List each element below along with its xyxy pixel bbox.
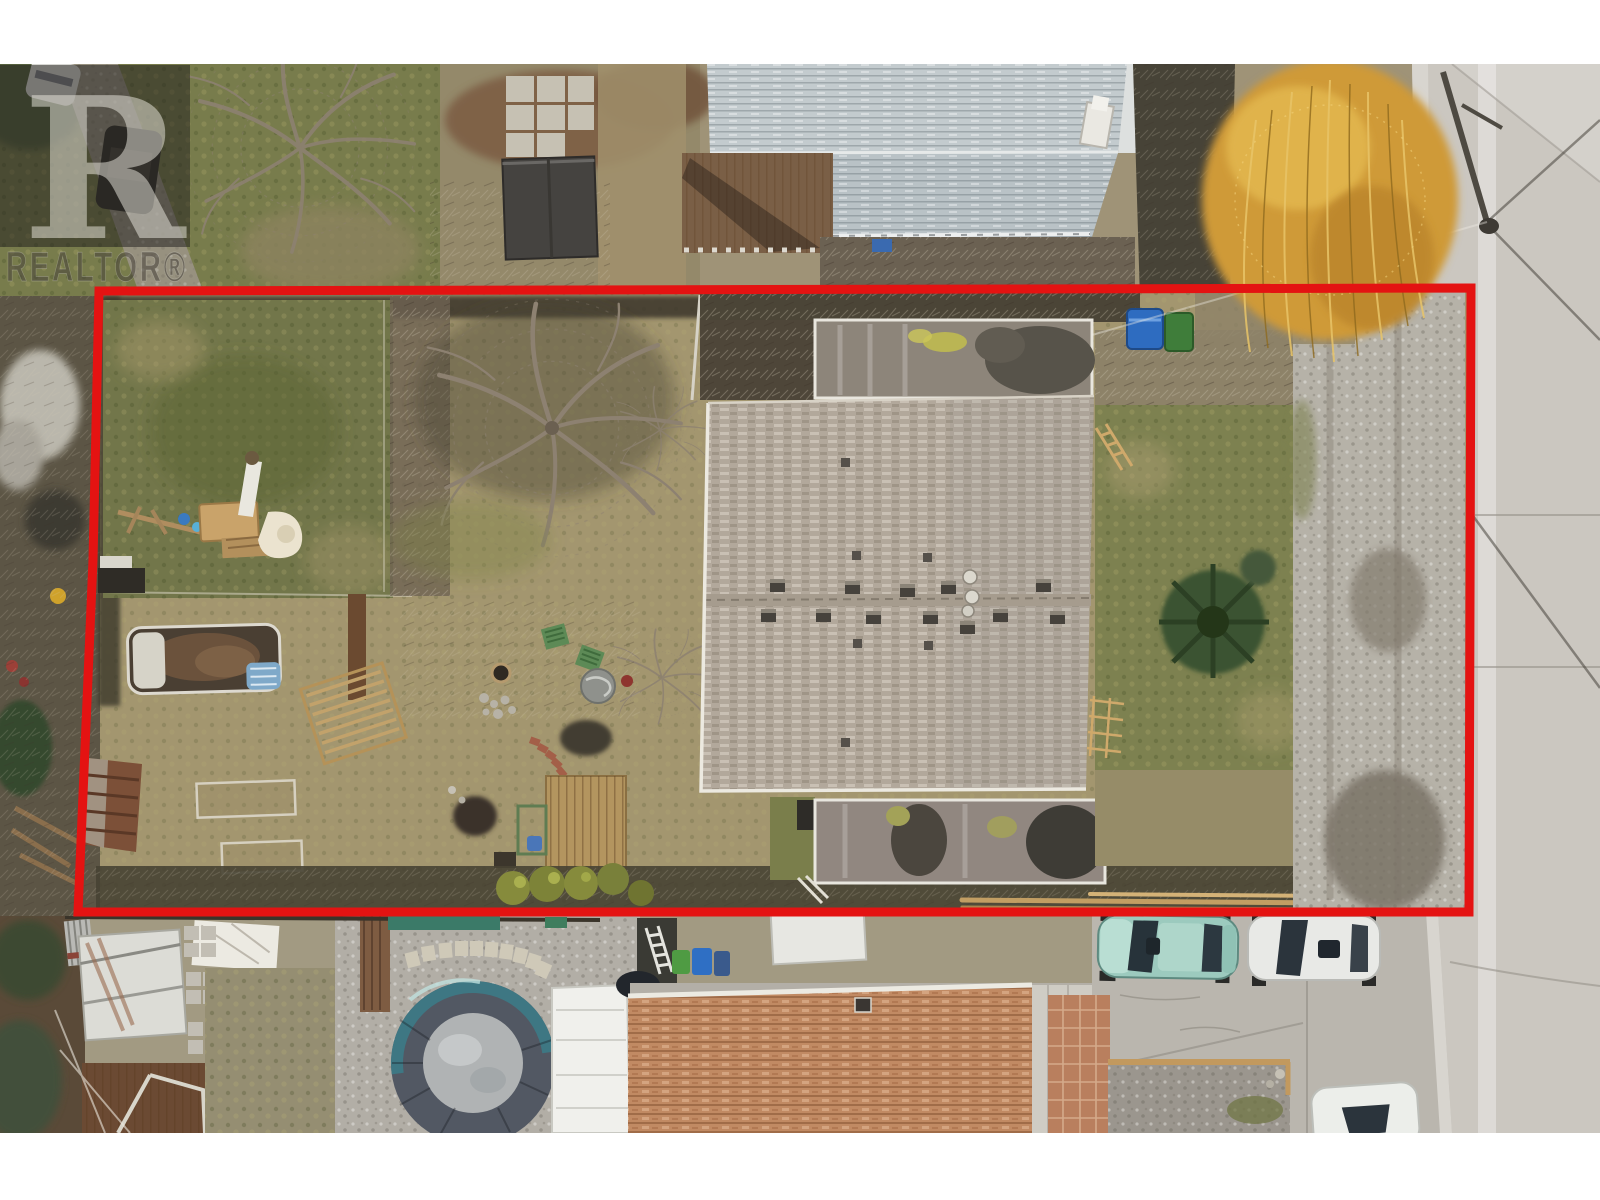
deck-neighbor-top	[682, 153, 833, 253]
red-bucket	[621, 675, 633, 687]
gravel-bed	[1108, 1062, 1290, 1133]
letterbox-bottom	[0, 1133, 1600, 1200]
blue-bin-neighbor	[872, 239, 892, 252]
hot-tub-cover	[581, 669, 615, 703]
neighbor-house-roof-bottom	[628, 985, 1092, 1133]
arbor-post	[348, 594, 366, 700]
main-house-flat-roof-upper	[815, 320, 1095, 398]
realtor-watermark: R REALTOR®	[0, 55, 190, 290]
shrub-small	[1240, 550, 1276, 586]
soil-mound	[560, 720, 612, 756]
dark-shed-roof	[502, 156, 597, 259]
main-house-shingle-roof	[701, 396, 1094, 791]
screenshot-stage: R REALTOR®	[0, 0, 1600, 1200]
blue-toy	[527, 836, 542, 851]
garden-trampoline	[127, 624, 281, 694]
subject-property	[0, 222, 1487, 916]
letterbox-top	[0, 0, 1600, 64]
garden-shed-brown	[82, 758, 142, 852]
neighbor-property-bottom	[0, 910, 1600, 1151]
garbage-bins-bottom	[672, 948, 730, 976]
car-teal	[1097, 911, 1238, 983]
planter-pot	[492, 664, 510, 682]
white-shed-2	[552, 985, 630, 1133]
aerial-photo: R REALTOR®	[0, 0, 1600, 1200]
car-white-1	[1248, 912, 1380, 986]
white-table	[771, 910, 866, 965]
chimney-bottom	[855, 998, 871, 1012]
white-shed	[78, 930, 186, 1041]
brick-patio	[1048, 995, 1110, 1133]
realtor-brand-text: REALTOR®	[6, 243, 188, 290]
